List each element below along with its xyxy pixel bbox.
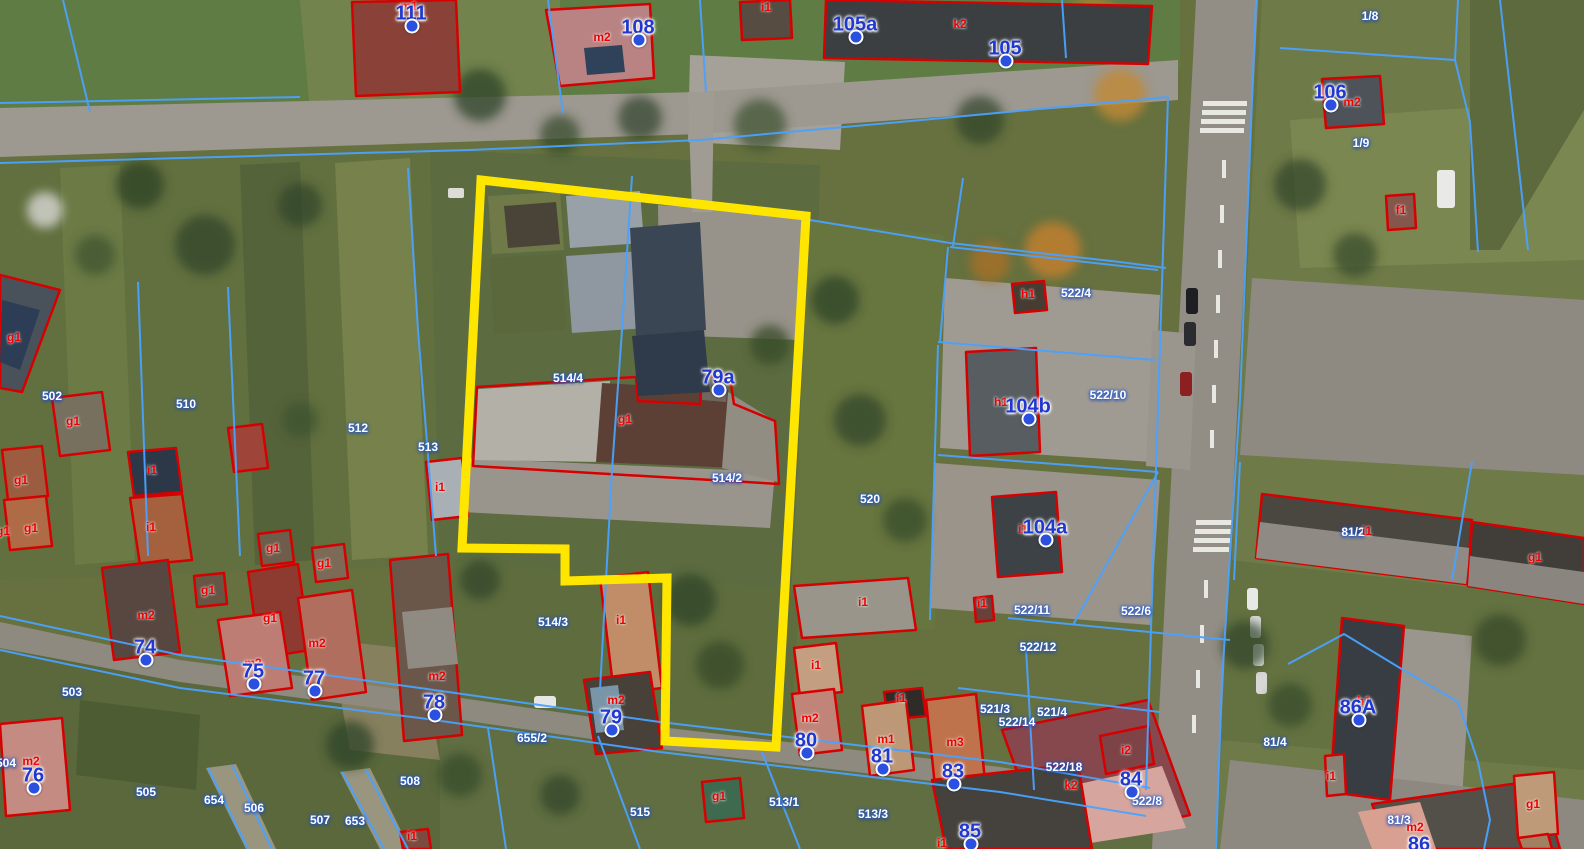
aerial-imagery-and-cadastral-overlay [0, 0, 1584, 849]
aerial-map-view[interactable]: 1/81/9502510512513514/4514/2514/3520522/… [0, 0, 1584, 849]
